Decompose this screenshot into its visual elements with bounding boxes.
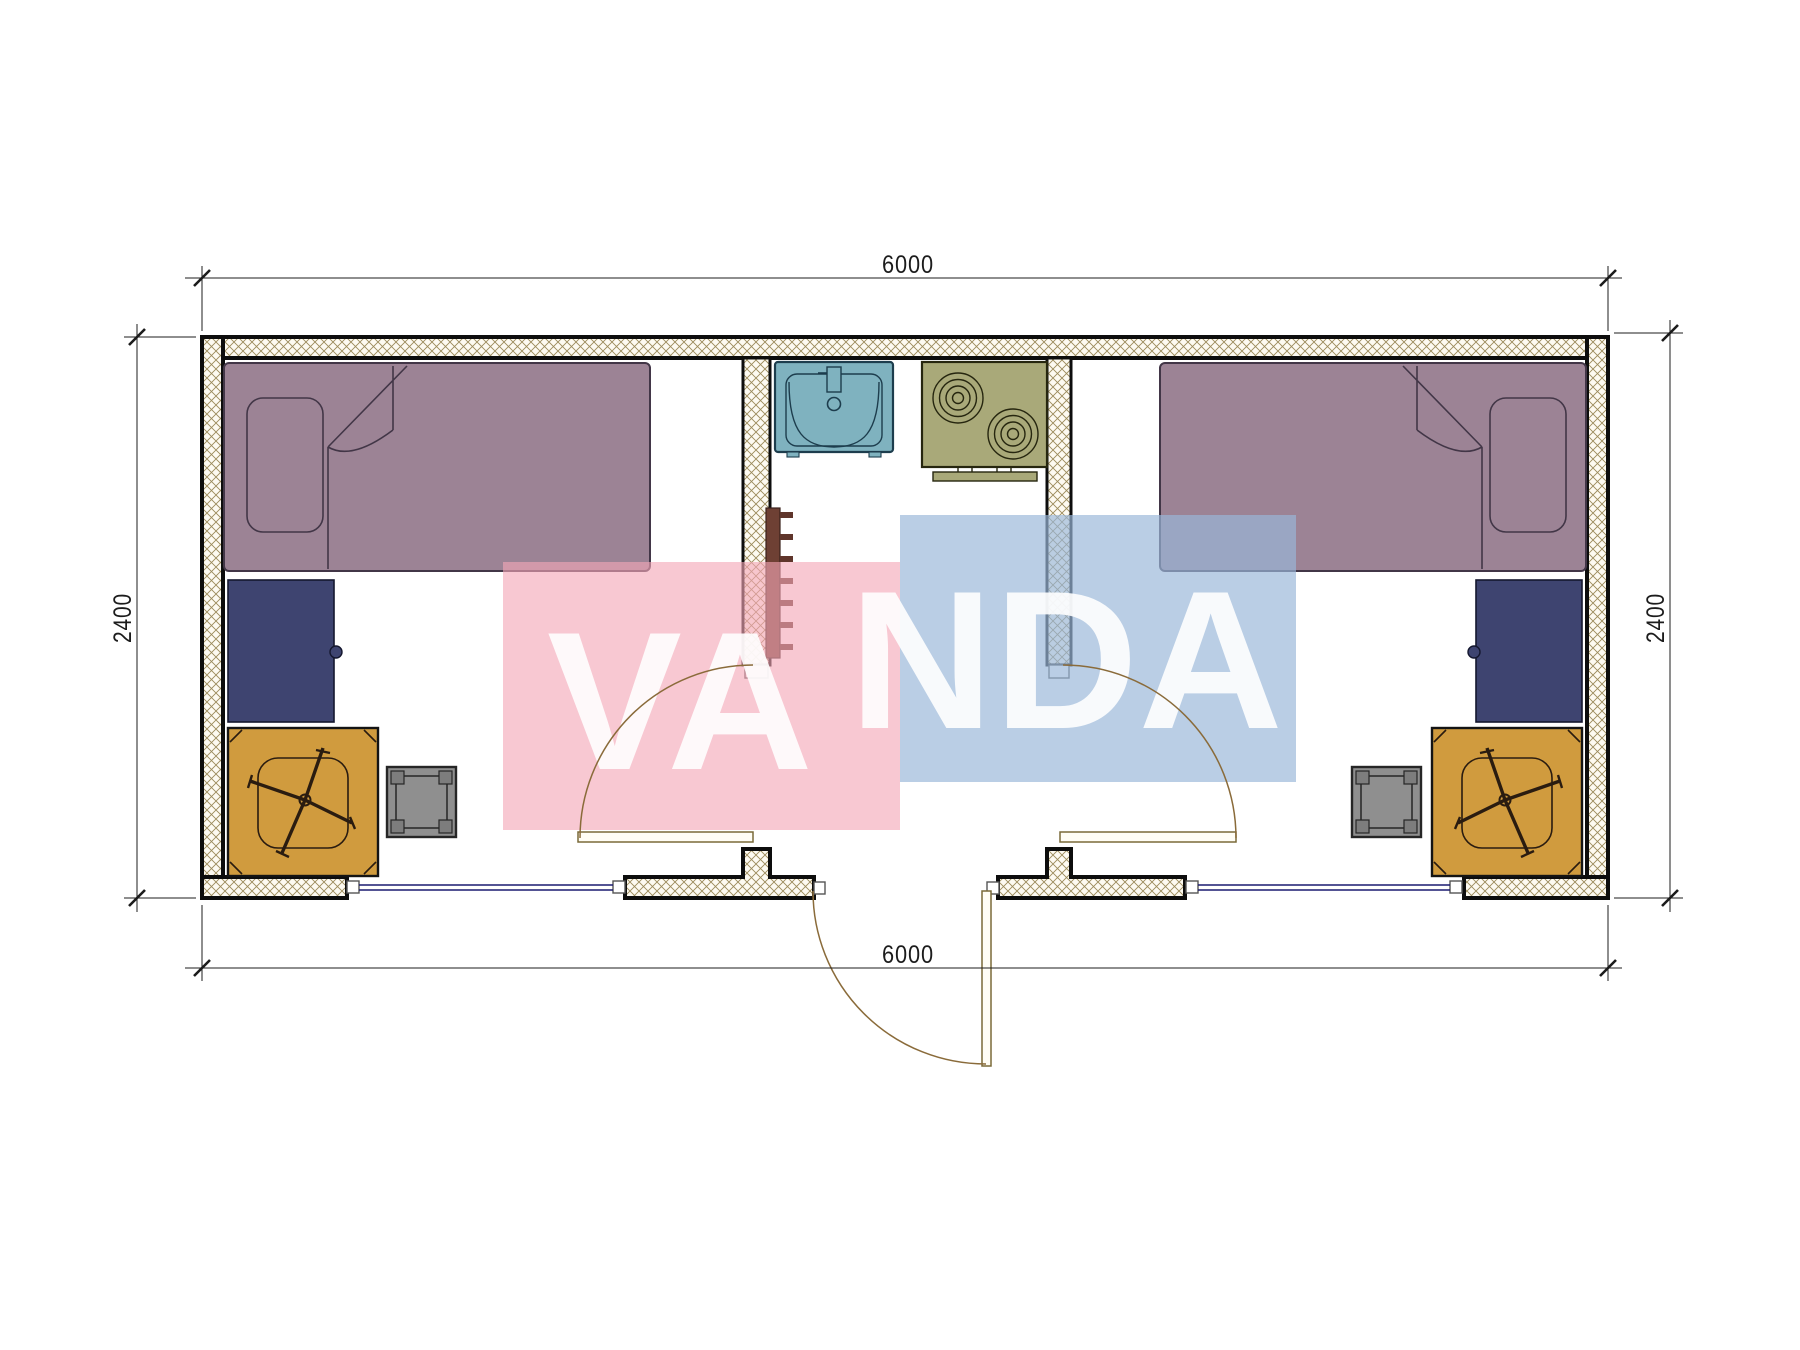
cabinet-left-knob-icon xyxy=(330,646,342,658)
pillow-left-icon xyxy=(247,398,323,532)
window-left-jamb-a xyxy=(347,881,359,893)
dim-label-bottom: 6000 xyxy=(882,941,934,969)
floor-plan-drawing: VA NDA 6000 6000 2400 xyxy=(0,0,1800,1350)
bottom-wall-corner-left xyxy=(202,877,347,898)
window-right-jamb-a xyxy=(1186,881,1198,893)
bottom-wall-threshold-right xyxy=(998,849,1185,898)
exterior-door-jamb-a xyxy=(814,882,825,894)
stove-icon xyxy=(922,362,1047,481)
windows xyxy=(359,885,1450,890)
dim-label-top: 6000 xyxy=(882,251,934,279)
watermark-letters-va: VA xyxy=(547,591,813,811)
watermark-letters-nda: NDA xyxy=(849,550,1283,770)
dim-label-left: 2400 xyxy=(109,593,137,643)
floor-plan-page: VA NDA 6000 6000 2400 xyxy=(0,0,1800,1350)
left-exterior-wall xyxy=(202,337,223,898)
cabinet-left xyxy=(228,580,334,722)
watermark: VA NDA xyxy=(503,515,1296,830)
sink-icon xyxy=(775,362,893,457)
window-left-jamb-b xyxy=(613,881,625,893)
cabinet-right xyxy=(1476,580,1582,722)
pillow-right-icon xyxy=(1490,398,1566,532)
window-right-glazing xyxy=(1198,885,1450,890)
bottom-wall-corner-right xyxy=(1464,877,1608,898)
door-leaf-exterior xyxy=(982,891,991,1066)
stool-left-icon xyxy=(387,767,456,837)
top-exterior-wall xyxy=(202,337,1608,358)
right-exterior-wall xyxy=(1587,337,1608,898)
window-right-jamb-b xyxy=(1450,881,1462,893)
window-left-glazing xyxy=(359,885,613,890)
door-leaf-left-room xyxy=(578,832,753,842)
cabinet-right-knob-icon xyxy=(1468,646,1480,658)
dim-label-right: 2400 xyxy=(1642,593,1670,643)
bottom-wall-threshold-left xyxy=(625,849,814,898)
door-swing-exterior xyxy=(813,891,986,1064)
stool-right-icon xyxy=(1352,767,1421,837)
door-leaf-right-room xyxy=(1060,832,1236,842)
